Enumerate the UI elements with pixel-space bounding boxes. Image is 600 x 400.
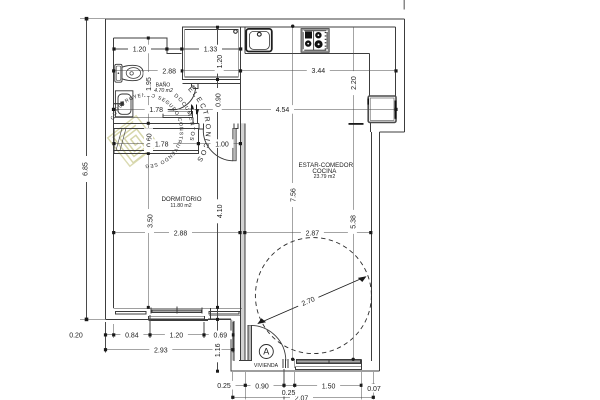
svg-text:1.33: 1.33 [204,47,218,54]
svg-text:4.10: 4.10 [217,204,224,218]
svg-text:1.50: 1.50 [322,383,336,390]
svg-text:11.80 m2: 11.80 m2 [170,203,191,209]
svg-text:7.56: 7.56 [290,188,297,202]
svg-text:3.44: 3.44 [311,68,325,75]
svg-text:0.07: 0.07 [367,386,381,393]
svg-text:23.79 m2: 23.79 m2 [314,174,336,180]
svg-text:0.25: 0.25 [282,390,296,397]
svg-text:4.70 m2: 4.70 m2 [154,88,173,94]
svg-text:1.16: 1.16 [215,343,222,357]
svg-text:1.78: 1.78 [155,141,169,148]
svg-text:1.20: 1.20 [170,333,184,340]
svg-text:3.50: 3.50 [148,214,155,228]
svg-text:1.95: 1.95 [146,77,153,91]
svg-text:4.54: 4.54 [276,107,290,114]
svg-text:5.38: 5.38 [350,215,357,229]
svg-text:2.93: 2.93 [154,347,168,354]
svg-text:DORMITORIO: DORMITORIO [161,196,201,203]
svg-text:0.84: 0.84 [125,333,139,340]
svg-text:1.78: 1.78 [149,107,163,114]
svg-text:2.20: 2.20 [351,76,358,90]
svg-text:1.20: 1.20 [133,47,147,54]
svg-text:1.20: 1.20 [217,55,224,69]
svg-text:2.88: 2.88 [162,69,176,76]
svg-text:2.87: 2.87 [306,230,320,237]
svg-text:0.20: 0.20 [69,333,83,340]
svg-text:6.85: 6.85 [83,162,90,176]
svg-text:2.88: 2.88 [174,230,188,237]
svg-text:0.25: 0.25 [217,383,231,390]
svg-text:1.00: 1.00 [215,141,229,148]
svg-text:0.90: 0.90 [215,93,222,107]
svg-text:VIVIENDA: VIVIENDA [254,363,279,369]
svg-text:0.69: 0.69 [213,333,227,340]
svg-text:A: A [263,347,269,357]
svg-text:0.90: 0.90 [255,383,269,390]
